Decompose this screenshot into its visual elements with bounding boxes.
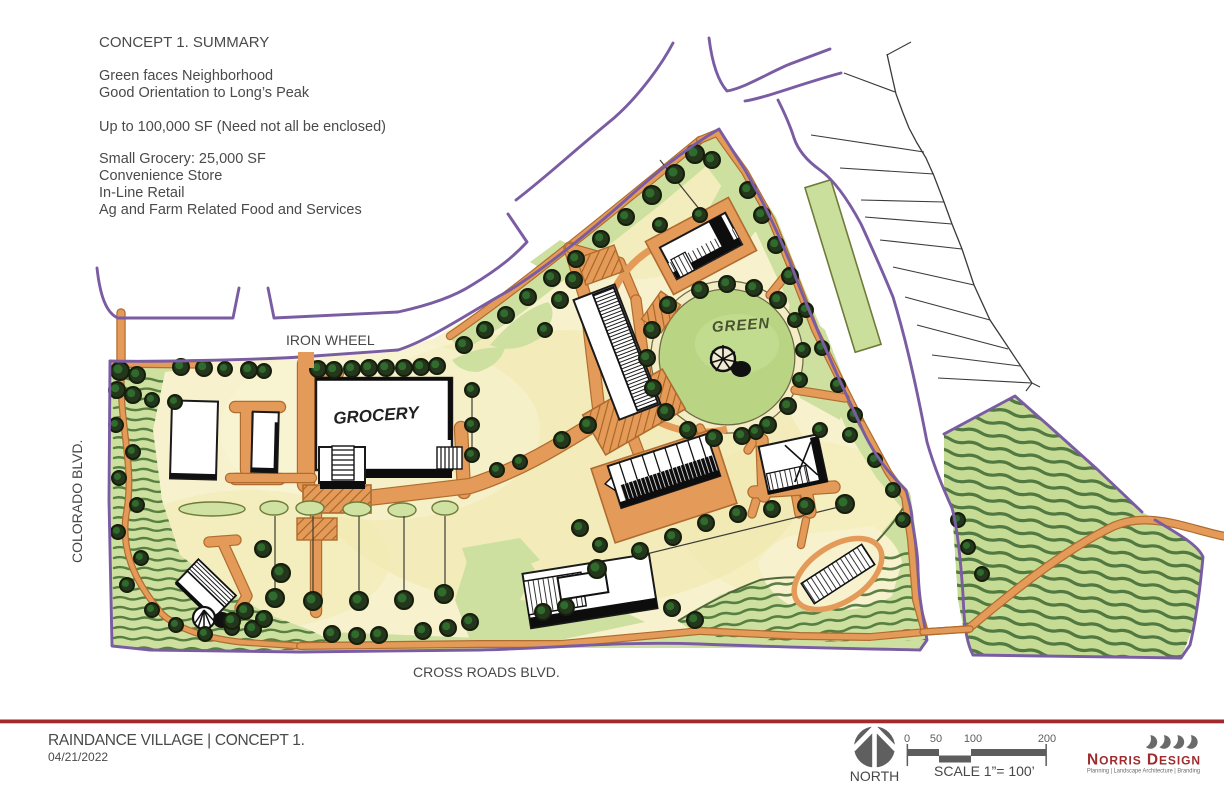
svg-text:200: 200 bbox=[1038, 733, 1056, 745]
svg-text:Planning | Landscape Architect: Planning | Landscape Architecture | Bran… bbox=[1087, 768, 1200, 775]
svg-text:CROSS ROADS BLVD.: CROSS ROADS BLVD. bbox=[413, 664, 560, 680]
svg-text:COLORADO BLVD.: COLORADO BLVD. bbox=[69, 440, 85, 563]
svg-text:NORRIS DESIGN: NORRIS DESIGN bbox=[1087, 752, 1200, 769]
svg-text:100: 100 bbox=[964, 733, 982, 745]
svg-text:RAINDANCE VILLAGE | CONCEPT 1.: RAINDANCE VILLAGE | CONCEPT 1. bbox=[48, 732, 305, 749]
svg-text:04/21/2022: 04/21/2022 bbox=[48, 750, 108, 764]
svg-text:Good Orientation to Long’s Pea: Good Orientation to Long’s Peak bbox=[99, 85, 310, 101]
svg-text:Green faces Neighborhood: Green faces Neighborhood bbox=[99, 68, 273, 84]
svg-text:Ag and Farm Related Food and S: Ag and Farm Related Food and Services bbox=[99, 202, 362, 218]
svg-text:NORTH: NORTH bbox=[850, 768, 900, 784]
svg-text:Convenience Store: Convenience Store bbox=[99, 168, 222, 184]
svg-text:SCALE 1”= 100’: SCALE 1”= 100’ bbox=[934, 763, 1035, 779]
svg-text:Up to 100,000 SF (Need not all: Up to 100,000 SF (Need not all be enclos… bbox=[99, 119, 386, 135]
svg-text:Small Grocery: 25,000 SF: Small Grocery: 25,000 SF bbox=[99, 151, 266, 167]
svg-text:IRON WHEEL: IRON WHEEL bbox=[286, 332, 375, 348]
svg-text:50: 50 bbox=[930, 733, 942, 745]
svg-text:CONCEPT 1. SUMMARY: CONCEPT 1. SUMMARY bbox=[99, 34, 269, 51]
svg-text:In-Line Retail: In-Line Retail bbox=[99, 185, 184, 201]
svg-text:0: 0 bbox=[904, 733, 910, 745]
